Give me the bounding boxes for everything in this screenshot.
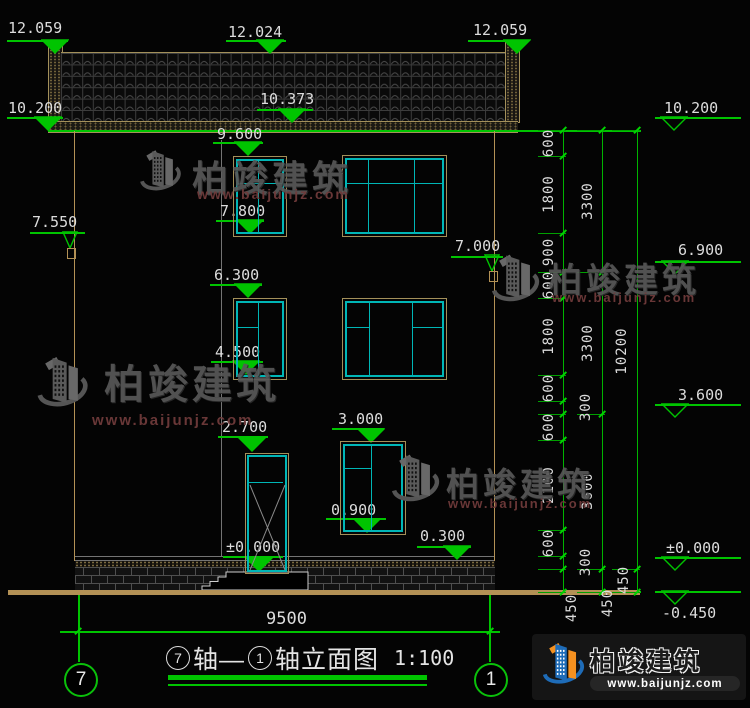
window <box>233 156 287 237</box>
green-line <box>168 675 427 680</box>
brand-logo-url: www.baijunjz.com <box>607 678 722 690</box>
dimension-chain-line <box>602 130 603 592</box>
window <box>233 298 287 380</box>
elevation-marker-triangle <box>661 260 689 275</box>
elevation-marker-triangle <box>661 556 689 571</box>
elevation-value: 7.550 <box>32 214 77 230</box>
door-leaf-diagonals <box>246 454 288 573</box>
window-mullion <box>345 327 370 328</box>
window <box>340 441 406 535</box>
brand-logo-icon <box>540 640 586 692</box>
watermark-url: www.baijunjz.com <box>448 496 592 511</box>
brand-logo-name: 柏竣建筑 <box>590 642 702 678</box>
dimension-value: 600 <box>541 129 557 157</box>
elevation-value: 3.000 <box>338 411 383 427</box>
dimension-value: 1800 <box>541 317 557 355</box>
total-width-dimension: 9500 <box>266 609 307 629</box>
dimension-value: 10200 <box>614 327 630 374</box>
dimension-value: 450 <box>600 589 616 617</box>
elevation-value: 0.300 <box>420 528 465 544</box>
dimension-value: 2100 <box>541 466 557 504</box>
watermark-url: www.baijunjz.com <box>552 290 696 305</box>
elevation-marker-triangle <box>443 545 471 560</box>
cad-geometry-layer: 12.059 12.024 12.059 10.200 10.373 9.600… <box>0 0 750 708</box>
elevation-value: 10.200 <box>664 100 718 116</box>
brand-logo: 柏竣建筑 www.baijunjz.com <box>532 634 746 700</box>
dimension-value: 3300 <box>580 182 596 220</box>
dimension-value: 3300 <box>580 324 596 362</box>
elevation-marker-triangle <box>34 116 62 131</box>
elevation-value: 9.600 <box>217 126 262 142</box>
elevation-marker-triangle <box>62 231 78 249</box>
elevation-marker-triangle <box>238 437 266 452</box>
elevation-marker-triangle <box>484 254 500 272</box>
elevation-marker-triangle <box>278 108 306 123</box>
elevation-drawing: 12.059 12.024 12.059 10.200 10.373 9.600… <box>0 0 750 708</box>
window-mullion <box>258 301 259 375</box>
tan-line <box>494 131 495 561</box>
window <box>342 155 447 237</box>
dimension-value: 1800 <box>541 175 557 213</box>
elevation-value: 12.059 <box>473 22 527 38</box>
watermark-name: 柏竣建筑 <box>446 458 594 506</box>
elevation-value: 12.024 <box>228 24 282 40</box>
brand-logo-url-bar: www.baijunjz.com <box>590 676 740 691</box>
window-mullion <box>371 444 372 530</box>
window-sash-frame <box>236 301 284 377</box>
elevation-marker-triangle <box>234 283 262 298</box>
window-mullion <box>236 183 282 184</box>
green-line <box>168 684 427 686</box>
dimension-value: 3600 <box>580 472 596 510</box>
door-transom-bar <box>249 482 283 483</box>
dimension-value: 600 <box>541 374 557 402</box>
entrance-door <box>245 453 289 574</box>
elevation-marker-triangle <box>41 39 69 54</box>
window-mullion <box>413 327 442 328</box>
window-mullion <box>343 468 372 469</box>
elevation-value: 3.600 <box>678 387 723 403</box>
window-sash-frame <box>236 159 284 234</box>
elevation-value: 2.700 <box>222 419 267 435</box>
axis-bubble-7: 7 <box>64 663 98 697</box>
window-mullion <box>414 158 415 232</box>
window-mullion <box>368 158 369 232</box>
watermark-icon <box>34 348 90 422</box>
dimension-value: 450 <box>564 594 580 622</box>
dimension-value: 600 <box>541 529 557 557</box>
green-line <box>60 631 500 633</box>
watermark-icon <box>134 148 186 198</box>
elevation-value: -0.450 <box>662 605 716 621</box>
dimension-chain-line <box>563 130 564 592</box>
elevation-value: 10.200 <box>8 100 62 116</box>
downpipe-top-box <box>489 271 498 282</box>
window-sash-frame <box>345 158 444 234</box>
window <box>342 298 447 380</box>
elevation-marker-triangle <box>660 116 688 131</box>
elevation-value: 6.900 <box>678 242 723 258</box>
dimension-value: 300 <box>578 548 594 576</box>
dimension-value: 300 <box>578 393 594 421</box>
dimension-value: 600 <box>541 413 557 441</box>
elevation-marker-triangle <box>661 590 689 605</box>
dimension-value: 450 <box>616 566 632 594</box>
axis-bubble-1-label: 1 <box>486 669 497 691</box>
dimension-chain-line <box>637 130 638 592</box>
elevation-value: 7.000 <box>455 238 500 254</box>
elevation-value: 10.373 <box>260 91 314 107</box>
elevation-value: 6.300 <box>214 267 259 283</box>
tan-line <box>74 131 75 561</box>
window-mullion <box>369 301 370 375</box>
window-mullion <box>258 159 259 232</box>
window-sash-frame <box>343 444 403 532</box>
elevation-marker-triangle <box>503 39 531 54</box>
window-sash-frame <box>345 301 444 377</box>
elevation-value: ±0.000 <box>666 540 720 556</box>
dimension-value: 600 <box>541 271 557 299</box>
elevation-marker-triangle <box>661 403 689 418</box>
window-mullion <box>412 301 413 375</box>
downpipe-top-box <box>67 248 76 259</box>
axis-bubble-1: 1 <box>474 663 508 697</box>
dimension-value: 900 <box>541 238 557 266</box>
elevation-value: 12.059 <box>8 20 62 36</box>
elevation-marker-triangle <box>234 141 262 156</box>
axis-bubble-7-label: 7 <box>76 669 87 691</box>
window-mullion <box>236 327 259 328</box>
elevation-marker-triangle <box>256 39 284 54</box>
window-mullion <box>345 183 442 184</box>
